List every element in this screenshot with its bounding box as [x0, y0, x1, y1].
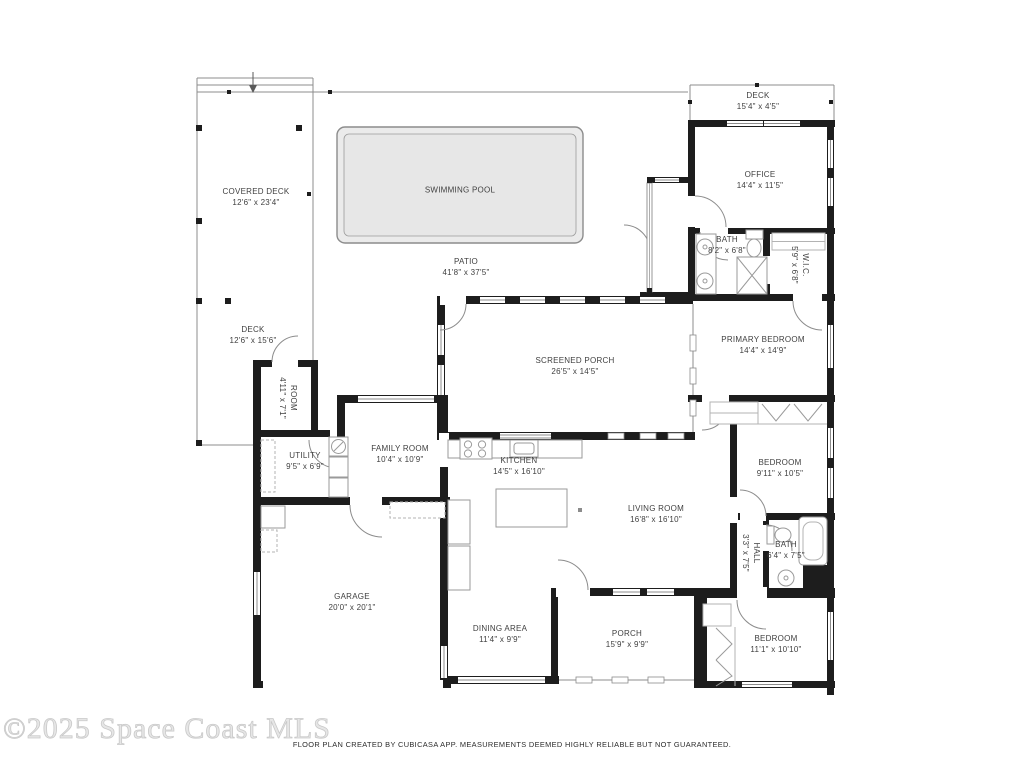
entry-arrow: [249, 72, 257, 93]
room-label-living-room: LIVING ROOM 16'8" x 16'10": [628, 503, 684, 525]
room-label-dining-area: DINING AREA 11'4" x 9'9": [473, 623, 527, 645]
room-label-primary-bedroom: PRIMARY BEDROOM 14'4" x 14'9": [721, 334, 804, 356]
room-label-swimming-pool: SWIMMING POOL: [425, 184, 495, 195]
room-label-family-room: FAMILY ROOM 10'4" x 10'9": [371, 443, 429, 465]
floor-plan-drawing: [0, 0, 1024, 768]
disclaimer-text: FLOOR PLAN CREATED BY CUBICASA APP. MEAS…: [0, 740, 1024, 749]
room-label-deck-left: DECK 12'6" x 15'6": [229, 324, 276, 346]
room-label-deck-top: DECK 15'4" x 4'5": [737, 90, 779, 112]
room-label-covered-deck: COVERED DECK 12'6" x 23'4": [222, 186, 289, 208]
room-label-hall: HALL 3'3" x 7'5": [740, 534, 762, 572]
room-label-bath-right: BATH 6'4" x 7'5": [767, 539, 805, 561]
room-label-wic: W.I.C. 5'9" x 6'8": [789, 246, 811, 284]
room-label-bath-top: BATH 8'2" x 6'8": [708, 234, 746, 256]
room-label-utility: UTILITY 9'5" x 6'9": [286, 450, 324, 472]
room-label-kitchen: KITCHEN 14'5" x 16'10": [493, 455, 545, 477]
floor-plan-page: COVERED DECK 12'6" x 23'4" SWIMMING POOL…: [0, 0, 1024, 768]
room-label-screened-porch: SCREENED PORCH 26'5" x 14'5": [535, 355, 614, 377]
room-label-garage: GARAGE 20'0" x 20'1": [328, 591, 375, 613]
room-label-office: OFFICE 14'4" x 11'5": [737, 169, 784, 191]
room-label-bedroom-bottom: BEDROOM 11'1" x 10'10": [750, 633, 801, 655]
room-label-patio: PATIO 41'8" x 37'5": [442, 256, 489, 278]
room-label-room: ROOM 4'11" x 7'1": [277, 377, 299, 419]
room-label-bedroom-right: BEDROOM 9'11" x 10'5": [757, 457, 804, 479]
vestibule-glass-wall: [647, 177, 652, 296]
room-label-porch: PORCH 15'9" x 9'9": [606, 628, 648, 650]
